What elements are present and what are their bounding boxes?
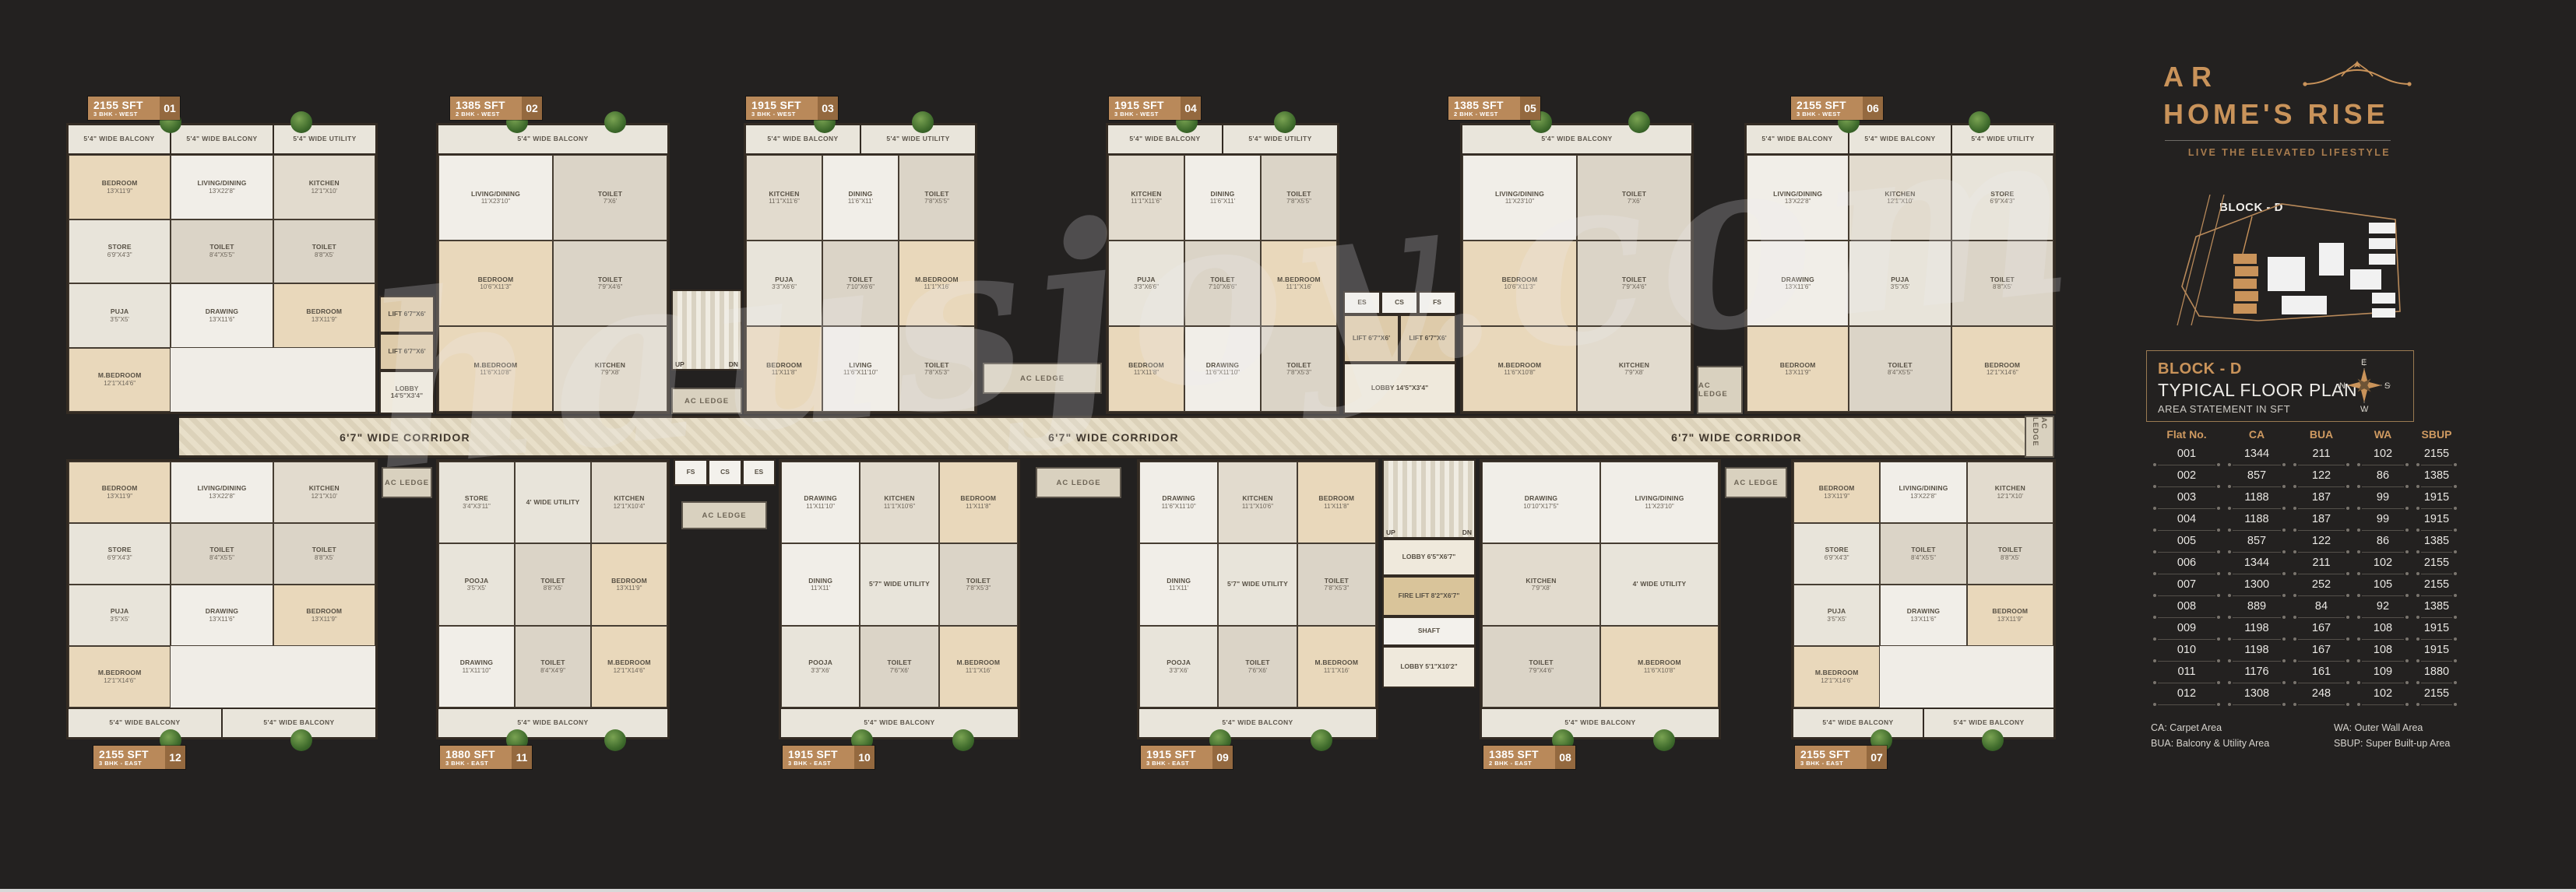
plant-icon (952, 729, 974, 751)
rooms-grid: DRAWING10'10"X17'5"LIVING/DINING11'X23'1… (1482, 462, 1719, 708)
ac-ledge: AC LEDGE (2025, 416, 2054, 458)
table-header-cell: CA (2224, 428, 2289, 441)
table-cell: 99 (2353, 513, 2412, 525)
room-cell: BEDROOM13'X11'9" (273, 283, 375, 348)
table-cell: 002 (2149, 469, 2224, 482)
unit-badge-02: 1385 SFT2 BHK - WEST 02 (450, 97, 542, 120)
shaft-cell: ES (742, 459, 776, 486)
lift-cell: LIFT 6'7"X6' (379, 333, 435, 370)
lift-cell: LIFT 6'7"X6' (379, 296, 435, 333)
table-cell: 2155 (2412, 448, 2461, 460)
unit-badge-09: 1915 SFT3 BHK - EAST 09 (1141, 746, 1233, 769)
unit-number: 04 (1181, 97, 1201, 120)
room-cell: TOILET7'10"X6'6" (822, 241, 899, 326)
plant-icon (604, 729, 626, 751)
table-row: 01011981671081915 (2149, 641, 2461, 659)
lobby-cell: LOBBY 6'5"X6'7" (1382, 539, 1476, 576)
room-cell: STORE6'9"X4'3" (69, 523, 171, 585)
table-cell: 1344 (2224, 448, 2289, 460)
room-cell: LIVING/DINING13'X22'8" (1880, 462, 1966, 523)
room-cell: TOILET8'8"X5' (1951, 241, 2053, 326)
unit-badge-06: 2155 SFT3 BHK - WEST 06 (1791, 97, 1883, 120)
legend-item: CA: Carpet Area (2151, 720, 2334, 736)
unit-badge-07: 2155 SFT3 BHK - EAST 07 (1795, 746, 1887, 769)
lobby-cell: LOBBY 14'5"X3'4" (379, 370, 435, 414)
room-cell: DRAWING13'X11'6" (1747, 241, 1849, 326)
table-cell: 211 (2289, 557, 2353, 569)
balcony-label: 5'4" WIDE BALCONY (1793, 709, 1924, 737)
table-cell: 167 (2289, 622, 2353, 634)
room-cell: BEDROOM13'X11'9" (69, 155, 171, 219)
table-cell: 1385 (2412, 535, 2461, 547)
balcony-strip: 5'4" WIDE BALCONY5'4" WIDE UTILITY (1108, 125, 1337, 155)
room-cell: 5'7" WIDE UTILITY (1218, 543, 1297, 625)
ac-ledge: AC LEDGE (382, 467, 432, 498)
unit-area-label: 2155 SFT3 BHK - EAST (1795, 746, 1867, 769)
room-cell: TOILET8'8"X5' (273, 523, 375, 585)
room-cell: KITCHEN12'1"X10' (273, 462, 375, 523)
balcony-strip: 5'4" WIDE BALCONY (1139, 708, 1376, 737)
shaft-cell: CS (708, 459, 742, 486)
plant-icon (1311, 729, 1332, 751)
shaft-cell: FS (1418, 291, 1456, 314)
table-row: 01111761611091880 (2149, 662, 2461, 681)
table-cell: 187 (2289, 491, 2353, 504)
room-cell: KITCHEN11'1"X11'6" (746, 155, 822, 241)
ac-ledge: AC LEDGE (1697, 366, 1743, 414)
plant-icon (912, 111, 934, 133)
rooms-grid: BEDROOM13'X11'9"LIVING/DINING13'X22'8"KI… (69, 155, 375, 412)
room-cell: KITCHEN12'1"X10' (1849, 155, 1951, 241)
table-cell: 1385 (2412, 469, 2461, 482)
unit-area-label: 1385 SFT2 BHK - WEST (1448, 97, 1520, 120)
room-cell: TOILET7'8"X5'3" (1297, 543, 1376, 625)
unit-number: 05 (1520, 97, 1540, 120)
plant-icon (1982, 729, 2004, 751)
unit-block-11: STORE3'4"X3'11"4' WIDE UTILITYKITCHEN12'… (436, 459, 670, 739)
shaft-cell: FS (674, 459, 708, 486)
plant-icon (1969, 111, 1990, 133)
room-cell: M.BEDROOM12'1"X14'6" (69, 646, 171, 708)
ac-ledge: AC LEDGE (681, 501, 767, 529)
table-cell: 001 (2149, 448, 2224, 460)
room-cell: PUJA3'5"X5' (69, 585, 171, 646)
room-cell: DINING11'X11' (781, 543, 860, 625)
unit-area-label: 1880 SFT3 BHK - EAST (440, 746, 512, 769)
table-cell: 1300 (2224, 578, 2289, 591)
area-statement-table: Flat No.CABUAWASBUP001134421110221550028… (2149, 424, 2461, 706)
room-cell: DINING11'6"X11' (822, 155, 899, 241)
room-cell: DRAWING13'X11'6" (171, 585, 273, 646)
unit-area-label: 1915 SFT3 BHK - EAST (783, 746, 854, 769)
table-row: 0031188187991915 (2149, 488, 2461, 507)
table-cell: 102 (2353, 557, 2412, 569)
room-cell: LIVING/DINING13'X22'8" (171, 155, 273, 219)
unit-badge-08: 1385 SFT2 BHK - EAST 08 (1483, 746, 1575, 769)
room-cell: BEDROOM11'X11'8" (1297, 462, 1376, 543)
table-cell: 86 (2353, 469, 2412, 482)
room-cell: BEDROOM13'X11'9" (591, 543, 667, 625)
table-cell: 109 (2353, 665, 2412, 678)
balcony-label: 5'4" WIDE BALCONY (746, 125, 861, 153)
room-cell: TOILET7'10"X6'6" (1184, 241, 1261, 326)
room-cell: BEDROOM10'6"X11'3" (1462, 241, 1577, 326)
room-cell: BEDROOM12'1"X14'6" (1951, 326, 2053, 412)
corridor-label: 6'7" WIDE CORRIDOR (1628, 431, 1846, 444)
ac-ledge: AC LEDGE (1725, 467, 1787, 498)
svg-text:N: N (2339, 381, 2345, 391)
room-cell: PUJA3'5"X5' (1849, 241, 1951, 326)
room-cell: STORE6'9"X4'3" (1951, 155, 2053, 241)
room-cell: TOILET7'9"X4'6" (1482, 626, 1600, 708)
table-cell: 1915 (2412, 513, 2461, 525)
table-cell: 011 (2149, 665, 2224, 678)
balcony-label: 5'4" WIDE BALCONY (171, 125, 274, 153)
room-cell: KITCHEN11'1"X10'6" (860, 462, 938, 543)
room-cell: KITCHEN12'1"X10' (1967, 462, 2053, 523)
unit-area-label: 1915 SFT3 BHK - EAST (1141, 746, 1212, 769)
balcony-label: 5'4" WIDE BALCONY (69, 125, 171, 153)
room-cell: TOILET7'6"X6' (860, 626, 938, 708)
room-cell: BEDROOM13'X11'9" (1967, 585, 2053, 646)
table-row: 00911981671081915 (2149, 619, 2461, 637)
table-cell: 167 (2289, 644, 2353, 656)
balcony-label: 5'4" WIDE BALCONY (1849, 125, 1952, 153)
balcony-strip: 5'4" WIDE BALCONY (781, 708, 1018, 737)
room-cell: 5'7" WIDE UTILITY (860, 543, 938, 625)
table-cell: 1198 (2224, 622, 2289, 634)
room-cell: TOILET8'8"X5' (515, 543, 591, 625)
table-header-cell: SBUP (2412, 428, 2461, 441)
table-cell: 1188 (2224, 513, 2289, 525)
balcony-label: 5'4" WIDE BALCONY (1139, 709, 1376, 737)
block-d-highlight (2233, 254, 2258, 314)
room-cell: DRAWING11'X11'10" (438, 626, 515, 708)
rooms-grid: KITCHEN11'1"X11'6"DINING11'6"X11'TOILET7… (746, 155, 975, 412)
balcony-label: 5'4" WIDE BALCONY (1462, 125, 1691, 153)
table-cell: 252 (2289, 578, 2353, 591)
table-cell: 012 (2149, 687, 2224, 700)
rooms-grid: BEDROOM13'X11'9"LIVING/DINING13'X22'8"KI… (1793, 462, 2053, 708)
unit-area-label: 1915 SFT3 BHK - WEST (1109, 97, 1181, 120)
room-cell: TOILET8'4"X5'5" (1880, 523, 1966, 585)
room-cell: BEDROOM11'X11'8" (939, 462, 1018, 543)
table-cell: 1344 (2224, 557, 2289, 569)
brand-name-line1: AR (2163, 61, 2219, 93)
unit-block-03: 5'4" WIDE BALCONY5'4" WIDE UTILITYKITCHE… (744, 123, 977, 414)
balcony-label: 5'4" WIDE BALCONY (69, 709, 223, 737)
table-cell: 86 (2353, 535, 2412, 547)
table-cell: 003 (2149, 491, 2224, 504)
room-cell: DRAWING11'6"X11'10" (1139, 462, 1218, 543)
unit-number: 09 (1212, 746, 1233, 769)
room-cell: TOILET7'9"X4'6" (1577, 241, 1691, 326)
unit-number: 02 (522, 97, 542, 120)
unit-badge-10: 1915 SFT3 BHK - EAST 10 (783, 746, 875, 769)
rooms-grid: DRAWING11'X11'10"KITCHEN11'1"X10'6"BEDRO… (781, 462, 1018, 708)
table-row: 002857122861385 (2149, 466, 2461, 485)
room-cell: PUJA3'5"X5' (1793, 585, 1880, 646)
room-cell: DINING11'6"X11' (1184, 155, 1261, 241)
room-cell: DRAWING13'X11'6" (171, 283, 273, 348)
unit-number: 01 (160, 97, 180, 120)
unit-area-label: 1915 SFT3 BHK - WEST (746, 97, 818, 120)
corridor-label: 6'7" WIDE CORRIDOR (1005, 431, 1223, 444)
lobby-cell: LOBBY 5'1"X10'2" (1382, 646, 1476, 688)
room-cell: M.BEDROOM11'1"X16' (1297, 626, 1376, 708)
rooms-grid: LIVING/DINING11'X23'10"TOILET7'X6'BEDROO… (1462, 155, 1691, 412)
table-header-row: Flat No.CABUAWASBUP (2149, 424, 2461, 444)
brand-tagline: LIVE THE ELEVATED LIFESTYLE (2165, 147, 2391, 158)
room-cell: 4' WIDE UTILITY (1600, 543, 1719, 625)
plant-icon (1274, 111, 1296, 133)
unit-badge-01: 2155 SFT3 BHK - WEST 01 (88, 97, 180, 120)
room-cell: KITCHEN11'1"X10'6" (1218, 462, 1297, 543)
table-cell: 99 (2353, 491, 2412, 504)
balcony-strip: 5'4" WIDE BALCONY (438, 125, 667, 155)
table-cell: 005 (2149, 535, 2224, 547)
unit-badge-04: 1915 SFT3 BHK - WEST 04 (1109, 97, 1201, 120)
unit-area-label: 2155 SFT3 BHK - WEST (88, 97, 160, 120)
lift-cell: LIFT 6'7"X6' (1399, 314, 1456, 363)
balcony-strip: 5'4" WIDE BALCONY (438, 708, 667, 737)
bottom-edge-strip (0, 889, 2576, 892)
table-row: 00113442111022155 (2149, 444, 2461, 463)
room-cell: M.BEDROOM11'1"X16' (899, 241, 975, 326)
unit-block-05: 5'4" WIDE BALCONYLIVING/DINING11'X23'10"… (1460, 123, 1694, 414)
room-cell: POOJA3'5"X5' (438, 543, 515, 625)
table-cell: 211 (2289, 448, 2353, 460)
unit-block-09: DRAWING11'6"X11'10"KITCHEN11'1"X10'6"BED… (1137, 459, 1378, 739)
unit-number: 03 (818, 97, 838, 120)
table-cell: 1385 (2412, 600, 2461, 613)
table-cell: 1915 (2412, 491, 2461, 504)
shaft-cell: ES (1343, 291, 1381, 314)
table-row: 005857122861385 (2149, 532, 2461, 550)
room-cell: KITCHEN12'1"X10' (273, 155, 375, 219)
unit-number: 11 (512, 746, 532, 769)
unit-block-07: BEDROOM13'X11'9"LIVING/DINING13'X22'8"KI… (1791, 459, 2056, 739)
lift-cell: LIFT 6'7"X6' (1343, 314, 1399, 363)
table-cell: 108 (2353, 644, 2412, 656)
ac-ledge: AC LEDGE (1036, 467, 1121, 498)
room-cell: TOILET7'9"X4'6" (553, 241, 667, 326)
unit-block-04: 5'4" WIDE BALCONY5'4" WIDE UTILITYKITCHE… (1106, 123, 1339, 414)
table-cell: 1176 (2224, 665, 2289, 678)
table-cell: 102 (2353, 687, 2412, 700)
room-cell: LIVING/DINING11'X23'10" (1600, 462, 1719, 543)
rooms-grid: STORE3'4"X3'11"4' WIDE UTILITYKITCHEN12'… (438, 462, 667, 708)
room-cell: M.BEDROOM11'6"X10'8" (1600, 626, 1719, 708)
brand-divider (2165, 140, 2391, 141)
site-buildings (2268, 223, 2395, 318)
table-cell: 102 (2353, 448, 2412, 460)
table-cell: 889 (2224, 600, 2289, 613)
table-header-cell: Flat No. (2149, 428, 2224, 441)
table-row: 01213082481022155 (2149, 684, 2461, 703)
rooms-grid: LIVING/DINING13'X22'8"KITCHEN12'1"X10'ST… (1747, 155, 2053, 412)
room-cell: LIVING/DINING11'X23'10" (1462, 155, 1577, 241)
room-cell: BEDROOM13'X11'9" (1793, 462, 1880, 523)
table-row: 0041188187991915 (2149, 510, 2461, 529)
plant-icon (1628, 111, 1650, 133)
unit-badge-05: 1385 SFT2 BHK - WEST 05 (1448, 97, 1540, 120)
balcony-label: 5'4" WIDE BALCONY (1482, 709, 1719, 737)
lobby-cell: LOBBY 14'5"X3'4" (1343, 363, 1456, 414)
unit-number: 12 (165, 746, 185, 769)
room-cell: TOILET8'8"X5' (273, 219, 375, 284)
room-cell: STORE6'9"X4'3" (1793, 523, 1880, 585)
table-row-separator (2149, 703, 2461, 706)
table-cell: 105 (2353, 578, 2412, 591)
balcony-label: 5'4" WIDE BALCONY (438, 125, 667, 153)
room-cell: KITCHEN7'9"X8' (1577, 326, 1691, 412)
table-cell: 161 (2289, 665, 2353, 678)
room-cell: M.BEDROOM12'1"X14'6" (1793, 646, 1880, 708)
table-cell: 1308 (2224, 687, 2289, 700)
balcony-strip: 5'4" WIDE BALCONY5'4" WIDE BALCONY (69, 708, 375, 737)
room-cell: M.BEDROOM11'1"X16' (939, 626, 1018, 708)
staircase: UPDN (671, 290, 742, 370)
balcony-label: 5'4" WIDE BALCONY (781, 709, 1018, 737)
room-cell: TOILET8'8"X5' (1967, 523, 2053, 585)
room-cell: 4' WIDE UTILITY (515, 462, 591, 543)
table-cell: 1915 (2412, 644, 2461, 656)
rooms-grid: DRAWING11'6"X11'10"KITCHEN11'1"X10'6"BED… (1139, 462, 1376, 708)
right-panel: AR HOME'S RISE LIVE THE ELEVATED LIFESTY… (2071, 0, 2576, 892)
table-header-cell: BUA (2289, 428, 2353, 441)
room-cell: M.BEDROOM11'1"X16' (1261, 241, 1337, 326)
room-cell: TOILET7'8"X5'3" (939, 543, 1018, 625)
room-cell: PUJA3'3"X6'6" (1108, 241, 1184, 326)
table-cell: 1880 (2412, 665, 2461, 678)
room-cell: TOILET7'8"X5'3" (1261, 326, 1337, 412)
room-cell: TOILET8'4"X4'9" (515, 626, 591, 708)
balcony-label: 5'4" WIDE UTILITY (274, 125, 375, 153)
table-cell: 108 (2353, 622, 2412, 634)
table-cell: 2155 (2412, 557, 2461, 569)
fire-lift-cell: FIRE LIFT 8'2"X6'7" (1382, 576, 1476, 616)
room-cell: LIVING/DINING11'X23'10" (438, 155, 553, 241)
room-cell: STORE3'4"X3'11" (438, 462, 515, 543)
room-cell: TOILET7'8"X5'5" (899, 155, 975, 241)
room-cell: PUJA3'3"X6'6" (746, 241, 822, 326)
balcony-label: 5'4" WIDE UTILITY (1952, 125, 2053, 153)
compass-icon: N E S W (2333, 354, 2395, 416)
table-cell: 122 (2289, 469, 2353, 482)
table-cell: 84 (2289, 600, 2353, 613)
room-cell: TOILET8'4"X5'5" (171, 219, 273, 284)
balcony-strip: 5'4" WIDE BALCONY5'4" WIDE BALCONY5'4" W… (69, 125, 375, 155)
table-cell: 1915 (2412, 622, 2461, 634)
unit-block-06: 5'4" WIDE BALCONY5'4" WIDE BALCONY5'4" W… (1744, 123, 2056, 414)
flourish-ornament-icon (2299, 59, 2416, 90)
balcony-strip: 5'4" WIDE BALCONY5'4" WIDE UTILITY (746, 125, 975, 155)
unit-block-02: 5'4" WIDE BALCONYLIVING/DINING11'X23'10"… (436, 123, 670, 414)
shaft-cell: CS (1381, 291, 1418, 314)
brand-name-line2: HOME'S RISE (2163, 98, 2389, 131)
table-cell: 248 (2289, 687, 2353, 700)
unit-area-label: 2155 SFT3 BHK - WEST (1791, 97, 1863, 120)
ac-ledge: AC LEDGE (671, 388, 742, 414)
table-row: 00888984921385 (2149, 597, 2461, 616)
legend-item: BUA: Balcony & Utility Area (2151, 736, 2334, 751)
table-cell: 006 (2149, 557, 2224, 569)
unit-area-label: 1385 SFT2 BHK - WEST (450, 97, 522, 120)
balcony-strip: 5'4" WIDE BALCONY (1482, 708, 1719, 737)
balcony-label: 5'4" WIDE BALCONY (1747, 125, 1849, 153)
unit-number: 08 (1555, 746, 1575, 769)
balcony-label: 5'4" WIDE BALCONY (1108, 125, 1223, 153)
table-cell: 2155 (2412, 687, 2461, 700)
room-cell: POOJA3'3"X6' (1139, 626, 1218, 708)
table-cell: 1188 (2224, 491, 2289, 504)
room-cell: M.BEDROOM12'1"X14'6" (591, 626, 667, 708)
room-cell: LIVING11'6"X11'10" (822, 326, 899, 412)
table-cell: 010 (2149, 644, 2224, 656)
room-cell: LIVING/DINING13'X22'8" (171, 462, 273, 523)
room-cell: KITCHEN7'9"X8' (553, 326, 667, 412)
unit-block-01: 5'4" WIDE BALCONY5'4" WIDE BALCONY5'4" W… (66, 123, 378, 414)
room-cell: KITCHEN11'1"X11'6" (1108, 155, 1184, 241)
room-cell: TOILET7'8"X5'3" (899, 326, 975, 412)
room-cell: TOILET8'4"X5'5" (1849, 326, 1951, 412)
room-cell: BEDROOM13'X11'9" (69, 462, 171, 523)
table-cell: 92 (2353, 600, 2412, 613)
unit-badge-11: 1880 SFT3 BHK - EAST 11 (440, 746, 532, 769)
site-map (2165, 195, 2406, 327)
balcony-strip: 5'4" WIDE BALCONY (1462, 125, 1691, 155)
room-cell: M.BEDROOM12'1"X14'6" (69, 348, 171, 413)
table-cell: 004 (2149, 513, 2224, 525)
room-cell: TOILET7'8"X5'5" (1261, 155, 1337, 241)
area-legend: CA: Carpet AreaBUA: Balcony & Utility Ar… (2151, 720, 2478, 751)
table-row: 00713002521052155 (2149, 575, 2461, 594)
unit-block-08: DRAWING10'10"X17'5"LIVING/DINING11'X23'1… (1480, 459, 1721, 739)
table-cell: 857 (2224, 469, 2289, 482)
table-cell: 857 (2224, 535, 2289, 547)
balcony-label: 5'4" WIDE BALCONY (438, 709, 667, 737)
table-row: 00613442111022155 (2149, 553, 2461, 572)
unit-badge-03: 1915 SFT3 BHK - WEST 03 (746, 97, 838, 120)
svg-text:W: W (2360, 405, 2369, 414)
legend-item: WA: Outer Wall Area (2334, 720, 2478, 736)
room-cell: KITCHEN7'9"X8' (1482, 543, 1600, 625)
room-cell: M.BEDROOM11'6"X10'8" (438, 326, 553, 412)
table-cell: 008 (2149, 600, 2224, 613)
room-cell: STORE6'9"X4'3" (69, 219, 171, 284)
room-cell: BEDROOM13'X11'9" (1747, 326, 1849, 412)
table-cell: 1198 (2224, 644, 2289, 656)
room-cell: DRAWING11'X11'10" (781, 462, 860, 543)
unit-block-12: BEDROOM13'X11'9"LIVING/DINING13'X22'8"KI… (66, 459, 378, 739)
balcony-strip: 5'4" WIDE BALCONY5'4" WIDE BALCONY (1793, 708, 2053, 737)
table-header-cell: WA (2353, 428, 2412, 441)
unit-badge-12: 2155 SFT3 BHK - EAST 12 (93, 746, 185, 769)
room-cell: BEDROOM10'6"X11'3" (438, 241, 553, 326)
plant-icon (290, 729, 312, 751)
ac-ledge: AC LEDGE (983, 363, 1102, 394)
table-cell: 187 (2289, 513, 2353, 525)
table-cell: 122 (2289, 535, 2353, 547)
rooms-grid: BEDROOM13'X11'9"LIVING/DINING13'X22'8"KI… (69, 462, 375, 708)
unit-number: 07 (1867, 746, 1887, 769)
svg-text:E: E (2361, 358, 2367, 367)
room-cell: M.BEDROOM11'6"X10'8" (1462, 326, 1577, 412)
room-cell: BEDROOM11'X11'8" (1108, 326, 1184, 412)
corridor-label: 6'7" WIDE CORRIDOR (296, 431, 514, 444)
room-cell: DINING11'X11' (1139, 543, 1218, 625)
